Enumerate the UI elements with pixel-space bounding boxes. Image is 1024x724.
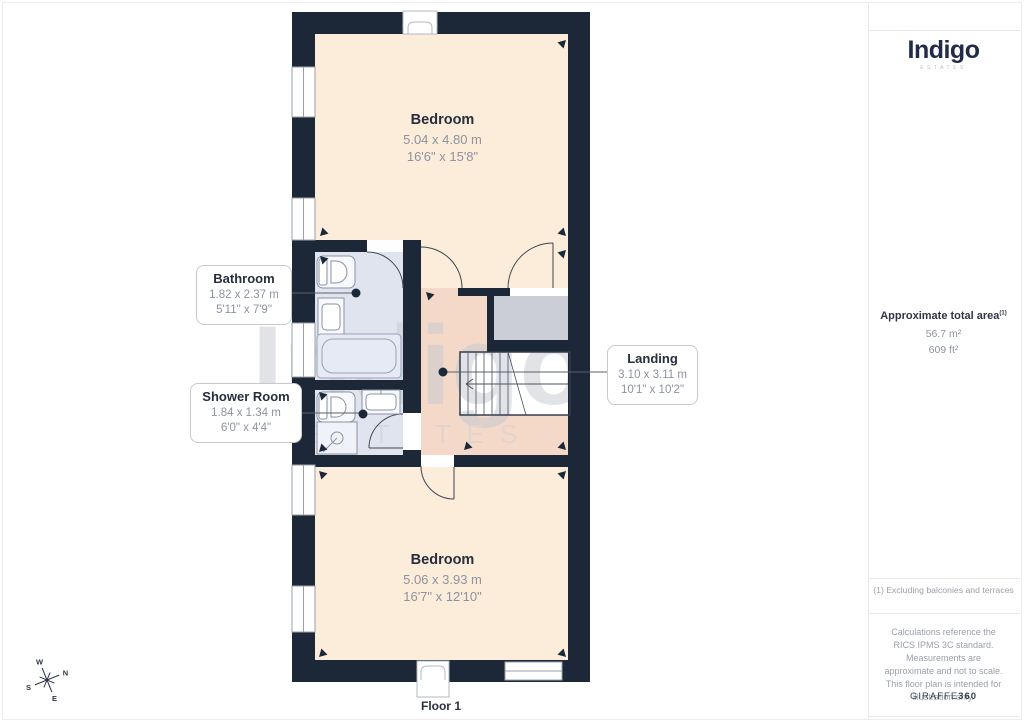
agency-logo-text: Indigo <box>868 38 1019 63</box>
camera-dot-shower <box>359 410 368 419</box>
sink-icon <box>318 298 344 336</box>
wall-top <box>292 12 590 34</box>
wall-hall-bottom <box>458 288 510 296</box>
wall-cupboard-bottom <box>487 340 570 352</box>
sink-icon <box>362 390 400 414</box>
room-box-landing: Landing 3.10 x 3.11 m 10'1" x 10'2" <box>607 345 698 405</box>
room-dim-imperial: 10'1" x 10'2" <box>612 383 693 398</box>
hall-strip-floor <box>421 240 570 288</box>
wall-bedroom2-top-right <box>454 455 570 467</box>
chimney-top <box>403 11 437 34</box>
compass-rose: N E S W <box>26 658 68 704</box>
room-dim-metric: 5.06 x 3.93 m <box>315 571 570 588</box>
room-name: Shower Room <box>195 389 297 404</box>
room-dim-metric: 1.84 x 1.34 m <box>195 406 297 421</box>
camera-dot-landing <box>439 368 448 377</box>
room-dim-imperial: 6'0" x 4'4" <box>195 421 297 436</box>
window <box>292 323 315 377</box>
opening-bedroom2-door <box>421 455 454 467</box>
room-dim-imperial: 16'7" x 12'10" <box>315 588 570 605</box>
chimney-bottom <box>417 661 449 697</box>
giraffe360-suffix: 360 <box>958 691 977 702</box>
compass-west-label: W <box>36 658 44 667</box>
area-summary-title-text: Approximate total area <box>880 310 999 322</box>
wall-cupboard-left <box>487 296 494 340</box>
exclusion-footnote: (1) Excluding balconies and terraces <box>868 585 1019 595</box>
area-summary-title: Approximate total area(1) <box>868 310 1019 322</box>
compass-east-label: E <box>52 694 57 703</box>
floor-label: Floor 1 <box>292 699 590 713</box>
room-name: Bedroom <box>315 112 570 128</box>
bathtub-icon <box>317 334 401 378</box>
room-dim-metric: 5.04 x 4.80 m <box>315 131 570 148</box>
wall-bath-shower <box>315 380 403 390</box>
area-summary-superscript: (1) <box>999 310 1006 316</box>
giraffe360-logo: GIRAFFE360 <box>868 691 1019 702</box>
room-dim-metric: 1.82 x 2.37 m <box>201 288 287 303</box>
camera-dot-bathroom <box>352 289 361 298</box>
room-name: Bedroom <box>315 552 570 568</box>
compass-south-label: S <box>26 683 31 692</box>
window <box>292 465 315 515</box>
side-panel: Indigo ESTATES Approximate total area(1)… <box>868 2 1021 719</box>
area-metric-value: 56.7 m² <box>868 326 1019 342</box>
agency-logo-subtext: ESTATES <box>868 65 1019 71</box>
wall-bedroom2-top-left <box>315 455 421 467</box>
room-box-bathroom: Bathroom 1.82 x 2.37 m 5'11" x 7'9" <box>196 265 292 325</box>
room-box-shower-room: Shower Room 1.84 x 1.34 m 6'0" x 4'4" <box>190 383 302 443</box>
area-summary: Approximate total area(1) 56.7 m² 609 ft… <box>868 310 1019 359</box>
window <box>292 198 315 240</box>
window <box>292 67 315 117</box>
window-bottom <box>505 662 562 680</box>
area-imperial-value: 609 ft² <box>868 342 1019 358</box>
wall-right <box>568 12 590 682</box>
room-dim-metric: 3.10 x 3.11 m <box>612 368 693 383</box>
room-label-bedroom-bottom: Bedroom 5.06 x 3.93 m 16'7" x 12'10" <box>315 552 570 605</box>
floorplan-page: Indigo ESTATES <box>0 0 1024 724</box>
opening-shower-door <box>403 413 421 450</box>
giraffe360-prefix: GIRAFFE <box>910 691 958 702</box>
room-name: Landing <box>612 351 693 366</box>
room-dim-imperial: 5'11" x 7'9" <box>201 303 287 318</box>
compass-north-label: N <box>63 669 68 678</box>
room-name: Bathroom <box>201 271 287 286</box>
opening-bathroom-door <box>367 240 403 252</box>
room-dim-imperial: 16'6" x 15'8" <box>315 148 570 165</box>
room-label-bedroom-top: Bedroom 5.04 x 4.80 m 16'6" x 15'8" <box>315 112 570 165</box>
agency-logo: Indigo ESTATES <box>868 38 1019 71</box>
window <box>292 586 315 632</box>
